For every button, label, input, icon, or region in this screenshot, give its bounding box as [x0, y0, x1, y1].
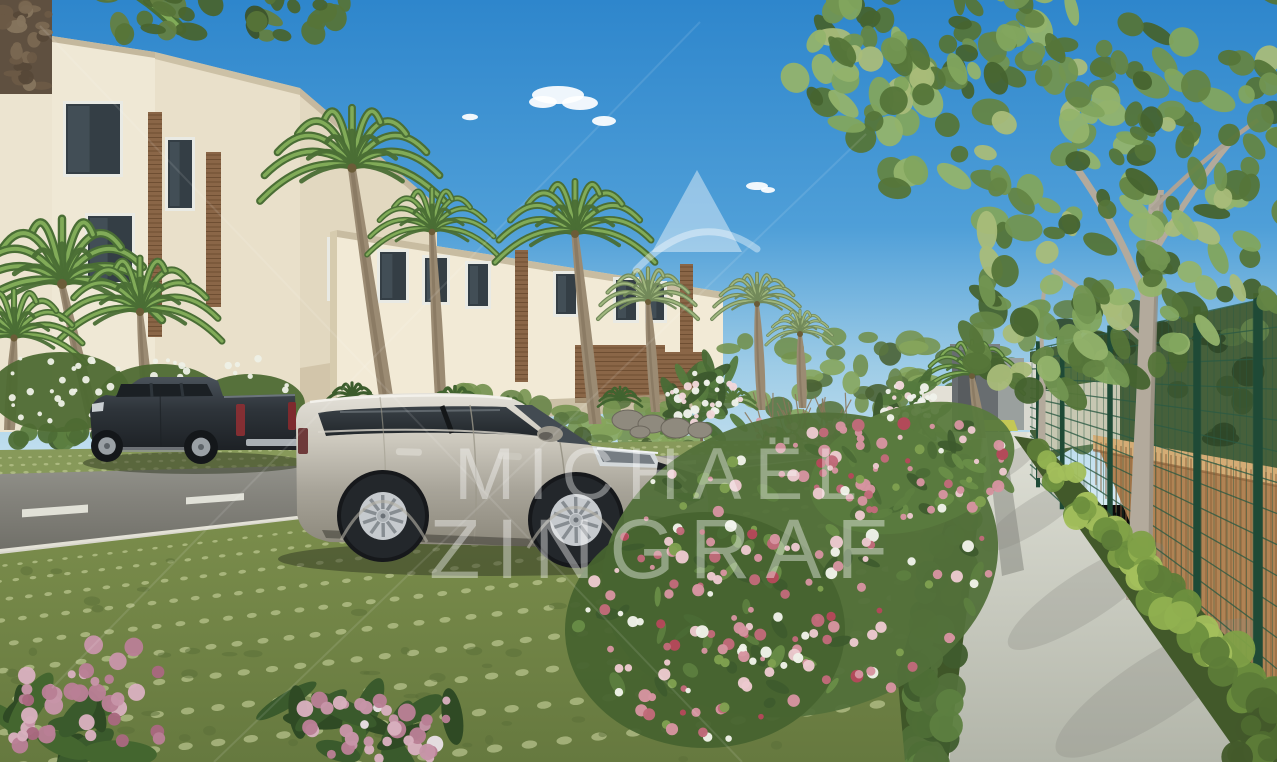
property-render-screenshot: MICHAËL ZINGRAF: [0, 0, 1277, 762]
watermark-line2: ZINGRAF: [429, 502, 903, 596]
property-render-image: MICHAËL ZINGRAF: [0, 0, 1277, 762]
